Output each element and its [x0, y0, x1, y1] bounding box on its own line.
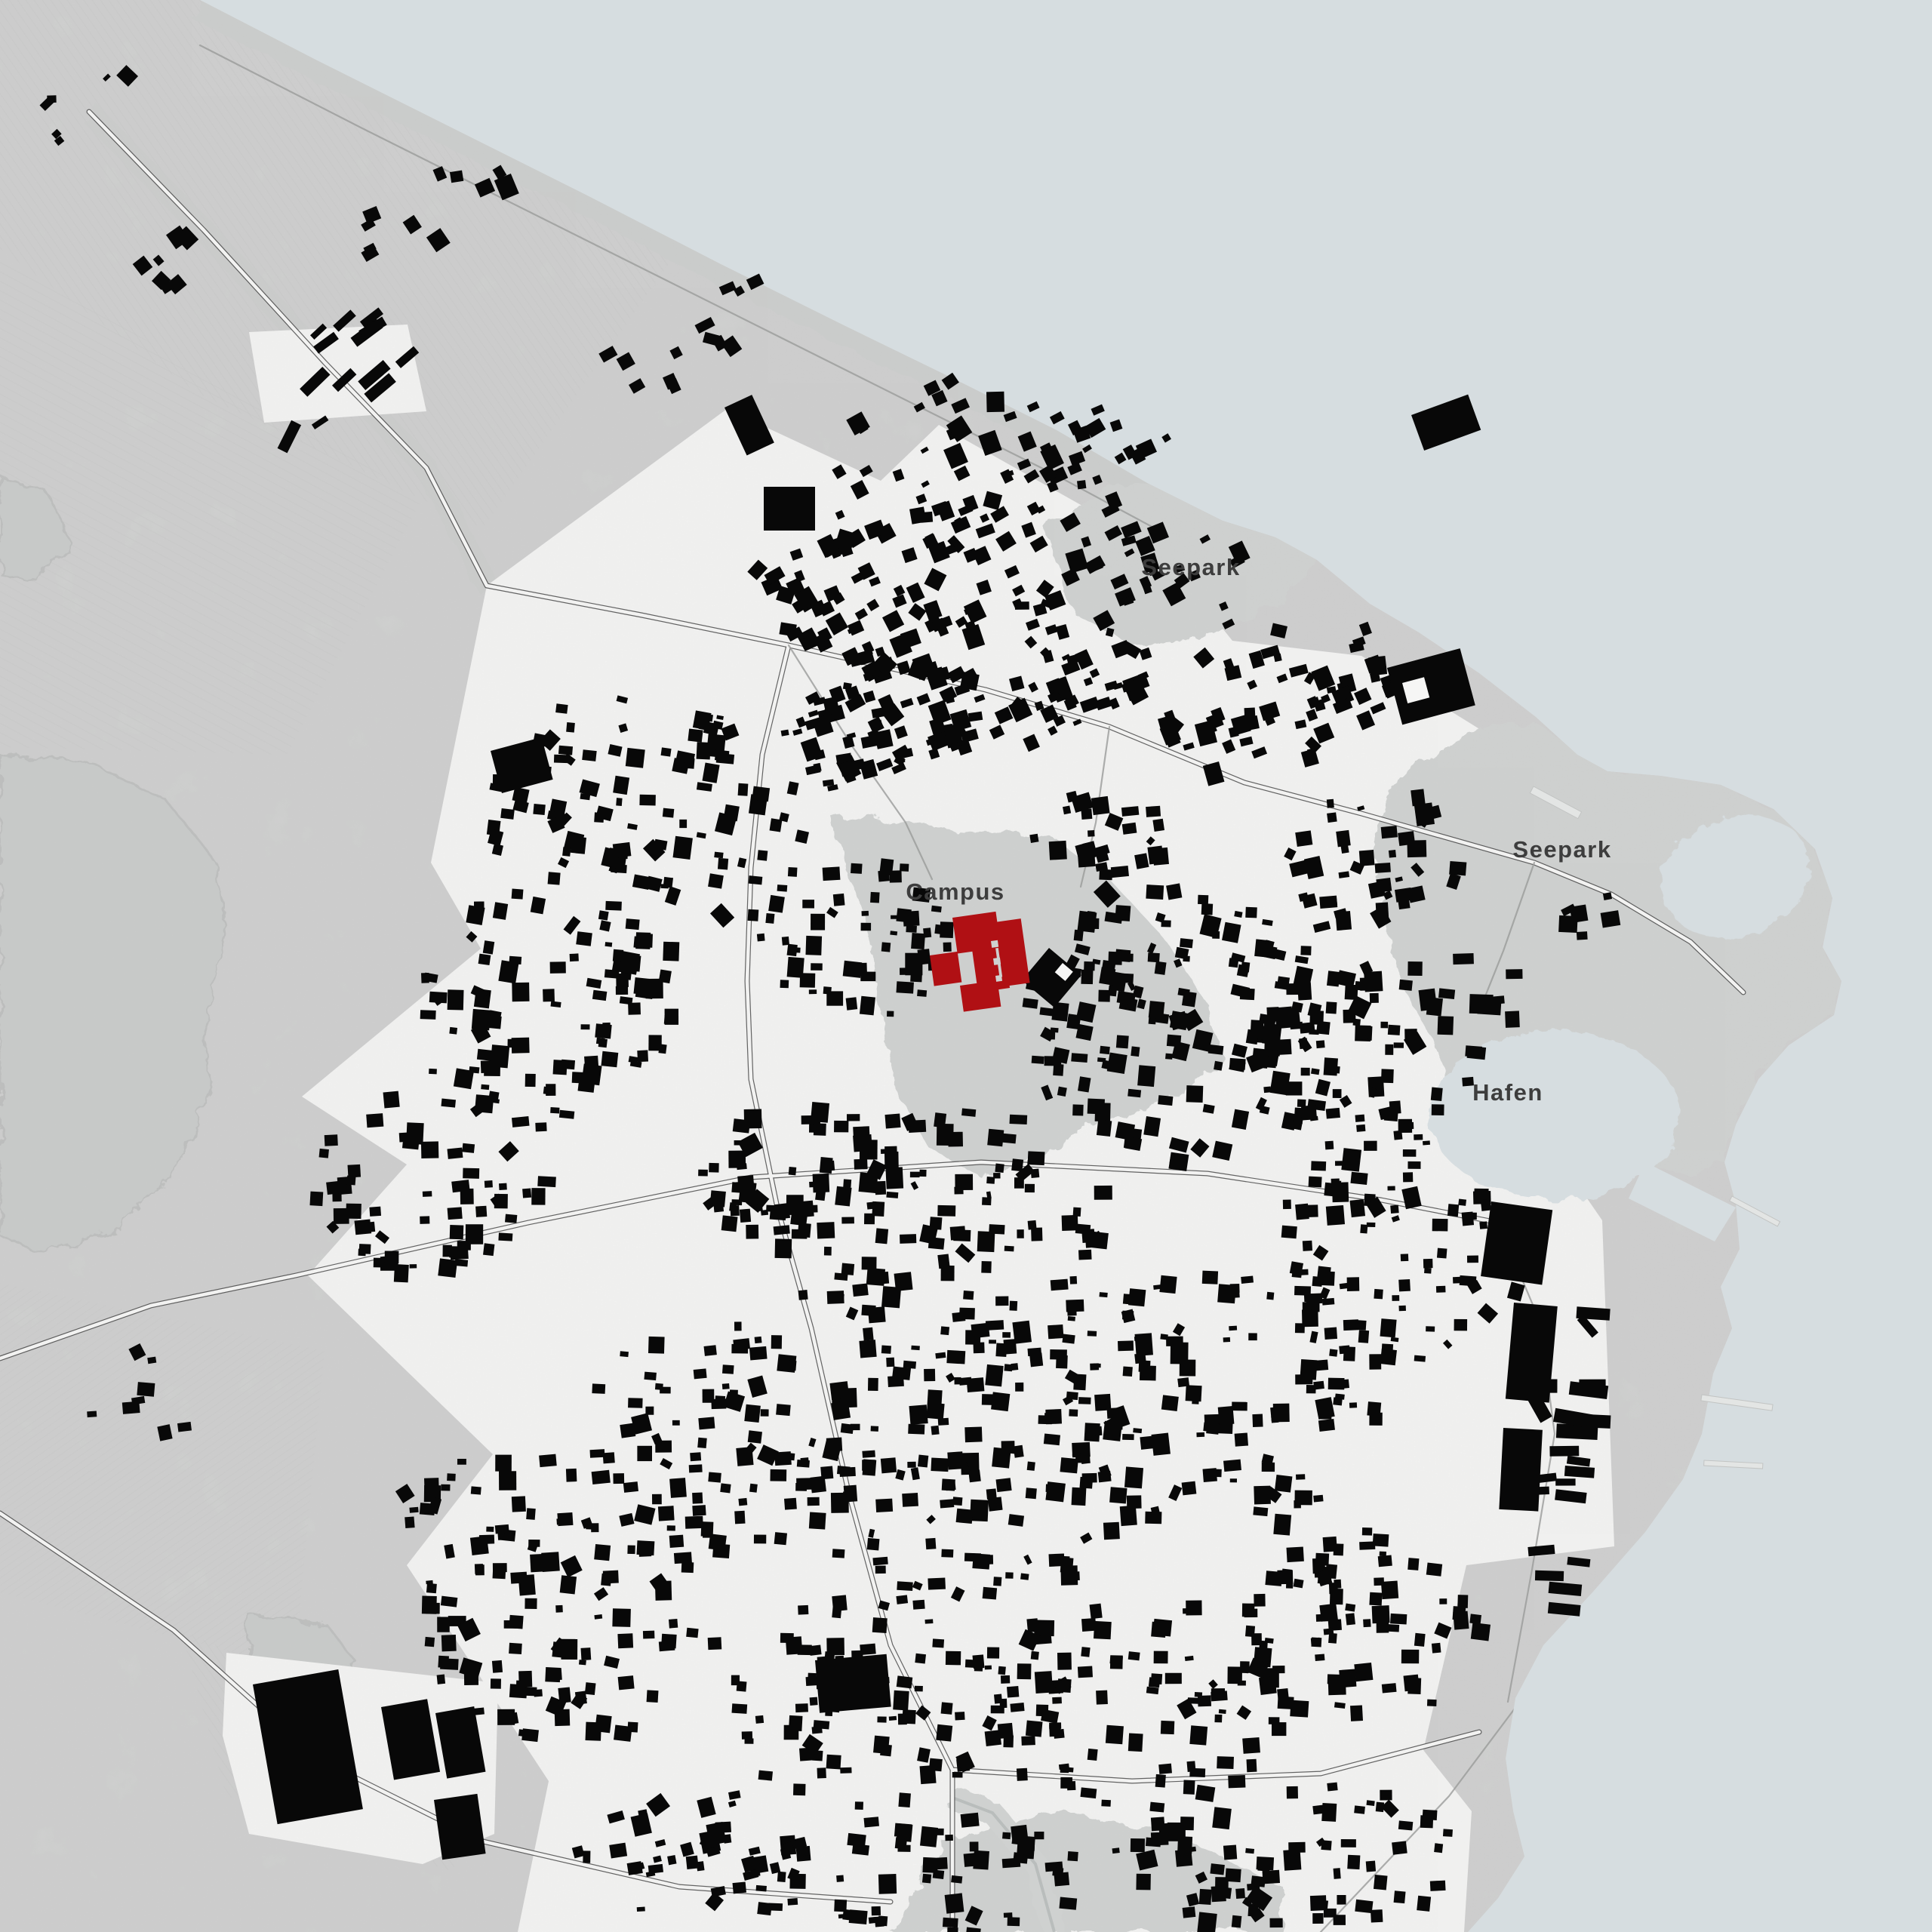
map-label-seepark-north: Seepark	[1141, 554, 1240, 580]
map-label-campus: Campus	[906, 878, 1004, 905]
site-plan-map: SeeparkSeeparkCampusHafen	[0, 0, 1932, 1932]
campus-courtyard	[995, 975, 1002, 982]
map-label-hafen: Hafen	[1472, 1079, 1543, 1106]
map-label-seepark-east: Seepark	[1512, 836, 1611, 863]
campus-courtyard	[991, 940, 998, 948]
map-viewport[interactable]: SeeparkSeeparkCampusHafen	[0, 0, 1932, 1932]
campus-building	[930, 952, 961, 986]
campus-courtyard	[993, 958, 1001, 965]
